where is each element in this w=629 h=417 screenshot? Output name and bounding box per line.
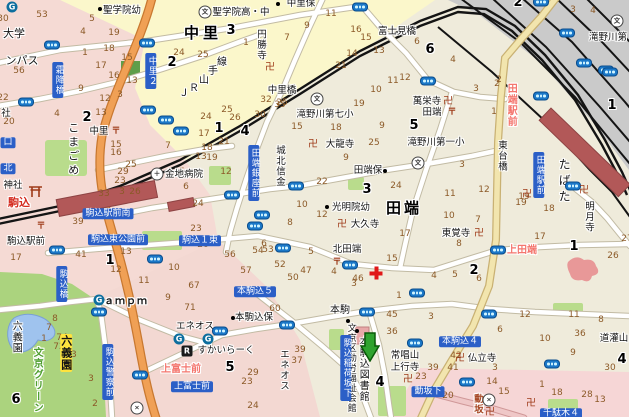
block-number: 26 [229,113,240,123]
signal-icon [212,327,228,336]
block-number: 47 [300,266,311,276]
place-label: 中里保 [287,0,316,9]
block-number: 15 [386,254,397,264]
police-icon: × [131,402,144,415]
bus-stop-badge: 動坂下 [411,386,444,397]
block-number: 15 [360,33,371,43]
block-number: 15 [121,53,132,63]
block-number: 16 [108,71,119,81]
bus-stop-badge: 口 [0,137,15,148]
place-label: 滝野川第七小 [296,110,353,120]
block-number: 35 [274,100,285,110]
block-number: 11 [325,9,336,19]
map-canvas[interactable]: 聖学院幼中里保聖学院高・中中里円勝寺富士見橋中里橋ＪＲ山手線こまごめ中里金地病院… [0,0,629,417]
school-icon: 文 [199,6,212,19]
block-number: 4 [80,27,86,37]
district-number: 4 [240,125,249,139]
place-label: 中里橋 [268,86,297,96]
place-label: 東台橋 [496,140,506,172]
police-icon: × [483,394,496,407]
manji-icon: 卍 [265,63,275,73]
place-label: 山 [199,76,209,87]
signal-icon [254,211,270,220]
district-number: 2 [167,56,176,70]
gas-icon: G [7,2,18,13]
block-number: 17 [10,253,21,263]
bus-stop-badge: 田端駅前 [533,152,544,198]
bus-stop-badge: 田端銀座前 [248,145,259,201]
place-label: 手 [208,67,218,78]
block-number: 71 [184,303,195,313]
place-label: 東覚寺 [442,229,471,239]
block-number: 10 [370,85,381,95]
block-number: 17 [399,229,410,239]
bus-stop-badge: 中里２ [145,53,156,89]
signal-icon [409,289,425,298]
block-number: 53 [36,10,47,20]
signal-icon [576,59,592,68]
block-number: 6 [497,325,503,335]
place-label: 神社 [3,181,22,191]
block-number: 39 [427,363,438,373]
signal-icon [559,29,575,38]
bus-stop-badge: 霜降橋 [52,62,63,98]
block-number: 8 [52,314,58,324]
block-number: 23 [114,176,125,186]
place-label: 常唱山 [391,351,420,361]
block-number: 67 [188,281,199,291]
block-number: 7 [46,323,52,333]
block-number: 3 [428,312,434,322]
bus-stop-badge: 駒込稲荷坂下 [340,335,351,401]
block-number: 18 [543,204,554,214]
district-number: 2 [82,111,91,125]
place-label: 動坂 [472,394,482,415]
place-label: 仏立寺 [468,354,497,364]
block-number: 3 [570,5,576,15]
manji-icon: 卍 [485,408,495,417]
district-number: 6 [11,393,20,407]
place-label: 上行寺 [391,363,420,373]
place-label: ａｍｐｍ [104,297,148,308]
place-label: エネオス [278,349,288,391]
signal-icon [342,261,358,270]
district-number: 6 [425,43,434,57]
signal-icon [224,191,240,200]
post-icon: 〒 [111,128,120,137]
place-label: 大久寺 [351,220,380,230]
block-number: 37 [291,356,302,366]
signal-icon [173,127,189,136]
block-number: 8 [456,239,462,249]
signal-icon [158,116,174,125]
place-label: 本駒 [330,306,350,317]
place-label: 富士見橋 [378,27,416,37]
block-number: 26 [607,251,618,261]
block-number: 7 [284,33,290,43]
district-number: 3 [362,183,371,197]
signal-icon [139,39,155,48]
block-number: 56 [224,250,235,260]
manji-icon: 卍 [308,140,318,150]
signal-icon [359,308,375,317]
block-number: 6 [261,239,267,249]
block-number: 18 [201,143,212,153]
district-number: 5 [409,119,418,133]
district-number: 1 [569,240,578,254]
block-number: 24 [247,401,258,411]
block-number: 2 [494,79,500,89]
gas-icon: G [174,334,185,345]
restaurant-icon: R [182,346,193,357]
district-number: 1 [214,122,223,136]
place-label: 金地病院 [165,170,203,180]
block-number: 13 [373,46,384,56]
block-number: 10 [443,211,454,221]
block-number: 13 [95,108,106,118]
manji-icon: 卍 [443,97,453,107]
signal-icon [407,339,423,348]
place-label: Ｒ [189,84,199,95]
place-label: 滝野川第一小 [407,138,464,148]
block-number: 4 [54,109,60,119]
block-number: 4 [331,267,337,277]
gas-icon: G [94,295,105,306]
block-number: 6 [183,182,189,192]
block-number: 21 [335,61,346,71]
block-number: 9 [379,121,385,131]
block-number: 3 [459,160,465,170]
manji-icon: 卍 [337,220,347,230]
place-label: 六義園 [60,334,72,372]
place-label: 上田端 [507,246,537,257]
block-number: 7 [165,141,171,151]
block-number: 52 [274,260,285,270]
block-number: 25 [197,50,208,60]
district-number: 4 [617,353,626,367]
block-number: 2 [92,399,98,409]
signal-icon [420,77,436,86]
bus-stop-badge: 駒込警察前 [102,344,113,400]
block-number: 3 [473,84,479,94]
block-number: 17 [198,129,209,139]
bus-stop-badge: 駒込１東 [179,235,221,246]
bus-stop-badge: 千駄木４ [540,408,582,417]
block-number: 15 [498,387,509,397]
block-number: 36 [386,327,397,337]
place-label: 明月寺 [583,201,593,233]
school-icon: 文 [611,15,624,28]
block-number: 14 [346,49,357,59]
block-number: 30 [0,14,9,24]
manji-icon: 卍 [455,354,465,364]
signal-icon [91,308,107,317]
block-number: 45 [386,310,397,320]
bus-stop-badge: 駒込橋 [56,266,67,302]
signal-icon [279,321,295,330]
bus-stop-badge: 駒込駅前南 [82,208,133,219]
block-number: 15 [291,122,302,132]
place-label: エネオス [176,322,214,332]
signal-icon [481,310,497,319]
block-number: 41 [447,363,458,373]
block-number: 11 [138,276,149,286]
dot-icon [355,329,359,333]
signal-icon [352,3,368,12]
block-number: 56 [13,66,24,76]
block-number: 9 [165,293,171,303]
signal-icon [459,378,475,387]
signal-icon [44,41,60,50]
manji-icon: 卍 [526,399,536,409]
block-number: 28 [581,390,592,400]
block-number: 3 [492,363,498,373]
block-number: 1 [41,334,47,344]
place-label: 円勝寺 [255,29,265,61]
block-number: 1 [396,291,402,301]
place-label: 上富士前 [161,365,201,376]
district-number: 5 [225,361,234,375]
bus-stop-badge: 本駒込５ [234,286,276,297]
block-number: 3 [88,374,94,384]
block-number: 9 [78,84,84,94]
label-overlay: 聖学院幼中里保聖学院高・中中里円勝寺富士見橋中里橋ＪＲ山手線こまごめ中里金地病院… [0,0,629,417]
place-label: こまごめ [67,122,79,178]
block-number: 4 [450,55,456,65]
place-label: 萬栄寺 [413,97,442,107]
bus-stop-badge: 本駒込４ [439,336,481,347]
block-number: 4 [590,6,596,16]
dot-icon [383,169,387,173]
bus-stop-badge: 駒込東公園前 [88,234,148,245]
block-number: 18 [330,123,341,133]
district-number: 1 [607,99,616,113]
block-number: 24 [390,181,401,191]
dot-icon [98,7,102,11]
dot-icon [231,316,235,320]
block-number: 10 [168,263,179,273]
signal-icon [490,246,506,255]
signal-icon [140,106,156,115]
block-number: 18 [103,44,114,54]
district-number: 3 [226,24,235,38]
district-number: 4 [375,376,384,390]
place-label: 田端駅前 [505,83,516,127]
block-number: 12 [316,210,327,220]
manji-icon: 卍 [579,186,589,196]
place-label: 北田端 [333,245,362,255]
bus-stop-badge: 上富士前 [171,381,213,392]
block-number: 1 [539,380,545,390]
block-number: 5 [89,14,95,24]
place-label: Ｊ [179,89,189,100]
block-number: 46 [352,274,363,284]
block-number: 11 [387,76,398,86]
place-label: 聖学院幼 [103,6,141,16]
bus-stop-badge: 北 [0,163,15,174]
district-number: 2 [513,0,522,10]
block-number: 5 [452,270,458,280]
signal-icon [275,244,291,253]
block-number: 9 [343,153,349,163]
signal-icon [533,0,549,7]
block-number: 19 [353,99,364,109]
place-label: 六義園 [10,321,21,354]
block-number: 30 [604,363,615,373]
block-number: 6 [414,37,420,47]
place-label: 中里 [89,127,108,137]
block-number: 11 [568,310,579,320]
block-number: 12 [99,94,110,104]
block-number: 12 [399,73,410,83]
block-number: 12 [220,167,231,177]
block-number: 24 [200,112,211,122]
place-label: 駒込駅前 [7,237,45,247]
dot-icon [325,205,329,209]
place-label: 大龍寺 [326,140,355,150]
place-label: 田端 [386,201,422,217]
block-number: 21 [218,137,229,147]
block-number: 19 [206,153,217,163]
signal-icon [288,182,304,191]
redcross-icon [370,267,383,280]
block-number: 13 [120,247,131,257]
block-number: 17 [95,61,106,71]
dot-icon [346,319,350,323]
place-label: 大学 [3,28,25,40]
manji-icon: 卍 [403,375,413,385]
block-number: 3 [119,187,125,197]
signal-icon [602,68,618,77]
block-number: 36 [574,329,585,339]
signal-icon [18,98,34,107]
place-label: ンパス [6,55,39,67]
place-label: 本駒込保 [235,313,273,323]
block-number: 27 [621,234,629,244]
school-icon: 文 [412,157,425,170]
block-number: 26 [129,187,140,197]
block-number: 7 [475,215,481,225]
block-number: 17 [534,232,545,242]
place-label: 社 [1,109,11,119]
block-number: 3 [117,90,123,100]
signal-icon [147,255,163,264]
place-label: 道灌山 [600,334,629,344]
block-number: 13 [126,76,137,86]
block-number: 12 [519,310,530,320]
block-number: 25 [368,138,379,148]
dot-icon [276,2,280,6]
block-number: 8 [598,315,604,325]
place-label: 文京グリーン [31,347,42,413]
gas-icon: G [203,334,214,345]
block-number: 10 [539,334,550,344]
block-number: 18 [551,388,562,398]
block-number: 1 [243,38,249,48]
block-number: 5 [308,247,314,257]
block-number: 30 [254,110,265,120]
block-number: 23 [190,224,201,234]
place-label: 光明院幼 [332,203,370,213]
block-number: 22 [0,93,9,103]
block-number: 10 [296,200,307,210]
block-number: 57 [240,266,251,276]
district-number: 2 [469,264,478,278]
place-label: 城北信金 [274,145,284,187]
block-number: 4 [431,271,437,281]
signal-icon [132,371,148,380]
hospital-icon: ＋ [151,168,164,181]
block-number: 23 [241,377,252,387]
manji-icon: 卍 [522,190,532,200]
school-icon: 文 [311,93,324,106]
post-icon: 〒 [36,223,45,232]
place-label: 田端保 [354,166,383,176]
block-number: 39 [294,345,305,355]
place-label: 田端 [422,108,441,118]
place-label: 滝野川第 [589,33,627,43]
block-number: 12 [478,185,489,195]
signal-icon [544,360,560,369]
block-number: 14 [486,377,497,387]
block-number: 22 [316,177,327,187]
block-number: 9 [570,348,576,358]
post-icon: 〒 [332,259,341,268]
block-number: 33 [98,189,109,199]
block-number: 41 [75,250,86,260]
signal-icon [49,246,65,255]
block-number: 1 [491,107,497,117]
block-number: 16 [110,148,121,158]
place-label: 中里 [184,26,222,42]
block-number: 13 [195,152,206,162]
post-icon: 〒 [447,109,456,118]
place-label: 駒込 [8,197,30,209]
place-label: 聖学院高・中 [212,8,269,18]
block-number: 32 [260,95,271,105]
block-number: 23 [415,372,426,382]
block-number: 50 [287,273,298,283]
block-number: 24 [192,199,203,209]
district-number: 1 [105,254,114,268]
block-number: 9 [304,21,310,31]
block-number: 8 [287,218,293,228]
manji-icon: 卍 [474,229,484,239]
block-number: 11 [444,189,455,199]
block-number: 1 [82,48,88,58]
block-number: 19 [108,28,119,38]
signal-icon [533,92,549,101]
signal-icon [247,222,263,231]
place-label: すかいらーく [197,346,254,356]
block-number: 13 [594,395,605,405]
place-label: 線 [217,58,227,69]
